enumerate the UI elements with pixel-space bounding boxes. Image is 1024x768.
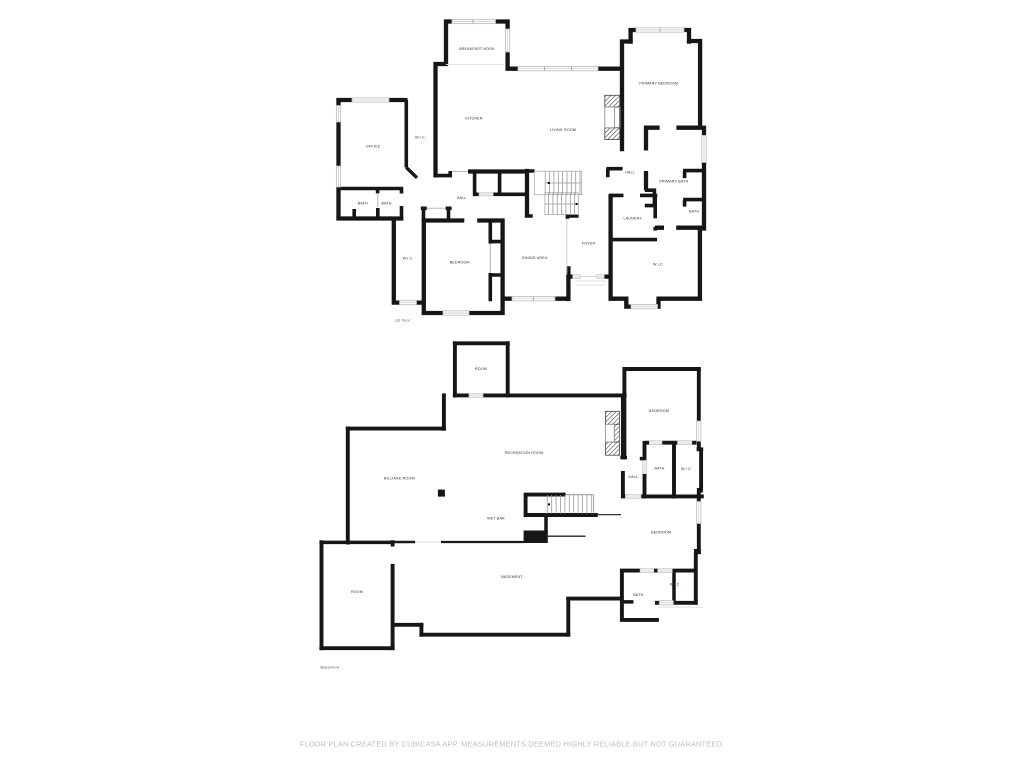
- svg-text:OFFICE: OFFICE: [366, 145, 381, 149]
- svg-text:BATH: BATH: [633, 593, 643, 597]
- svg-text:ROOM: ROOM: [351, 590, 363, 594]
- svg-text:W.I.C.: W.I.C.: [415, 135, 426, 139]
- svg-text:FLOOR PLAN CREATED BY CUBICASA: FLOOR PLAN CREATED BY CUBICASA APP. MEAS…: [300, 740, 725, 749]
- svg-text:W.I.C.: W.I.C.: [403, 257, 414, 261]
- svg-text:BATH: BATH: [654, 467, 664, 471]
- svg-text:DINING AREA: DINING AREA: [522, 256, 548, 260]
- svg-text:HALL: HALL: [629, 475, 639, 479]
- svg-text:BEDROOM: BEDROOM: [651, 530, 671, 534]
- svg-text:W.I.C.: W.I.C.: [681, 467, 692, 471]
- svg-text:W.I.C.: W.I.C.: [670, 583, 681, 587]
- svg-text:HALL: HALL: [457, 196, 467, 200]
- svg-text:FOYER: FOYER: [582, 241, 596, 245]
- svg-text:RECREATION ROOM: RECREATION ROOM: [505, 451, 543, 455]
- svg-text:ROOM: ROOM: [475, 367, 487, 371]
- svg-text:BASEMENT: BASEMENT: [501, 575, 523, 579]
- svg-text:W.I.C.: W.I.C.: [653, 263, 664, 267]
- svg-text:1st floor: 1st floor: [395, 319, 411, 323]
- svg-text:BATH: BATH: [381, 201, 391, 205]
- svg-text:LIVING ROOM: LIVING ROOM: [550, 128, 576, 132]
- svg-text:BEDROOM: BEDROOM: [649, 409, 669, 413]
- svg-text:HALL: HALL: [625, 171, 635, 175]
- svg-text:BEDROOM: BEDROOM: [450, 261, 470, 265]
- svg-text:KITCHEN: KITCHEN: [465, 117, 482, 121]
- svg-text:BREAKFAST NOOK: BREAKFAST NOOK: [459, 47, 495, 51]
- svg-text:PRIMARY BATH: PRIMARY BATH: [659, 180, 688, 184]
- svg-text:BILLIARD ROOM: BILLIARD ROOM: [384, 477, 415, 481]
- svg-text:LAUNDRY: LAUNDRY: [624, 217, 643, 221]
- svg-text:Basement: Basement: [321, 666, 340, 670]
- svg-text:BATH: BATH: [689, 210, 699, 214]
- svg-text:WET BAR: WET BAR: [487, 517, 505, 521]
- svg-text:PRIMARY BEDROOM: PRIMARY BEDROOM: [639, 82, 678, 86]
- svg-text:BATH: BATH: [358, 201, 368, 205]
